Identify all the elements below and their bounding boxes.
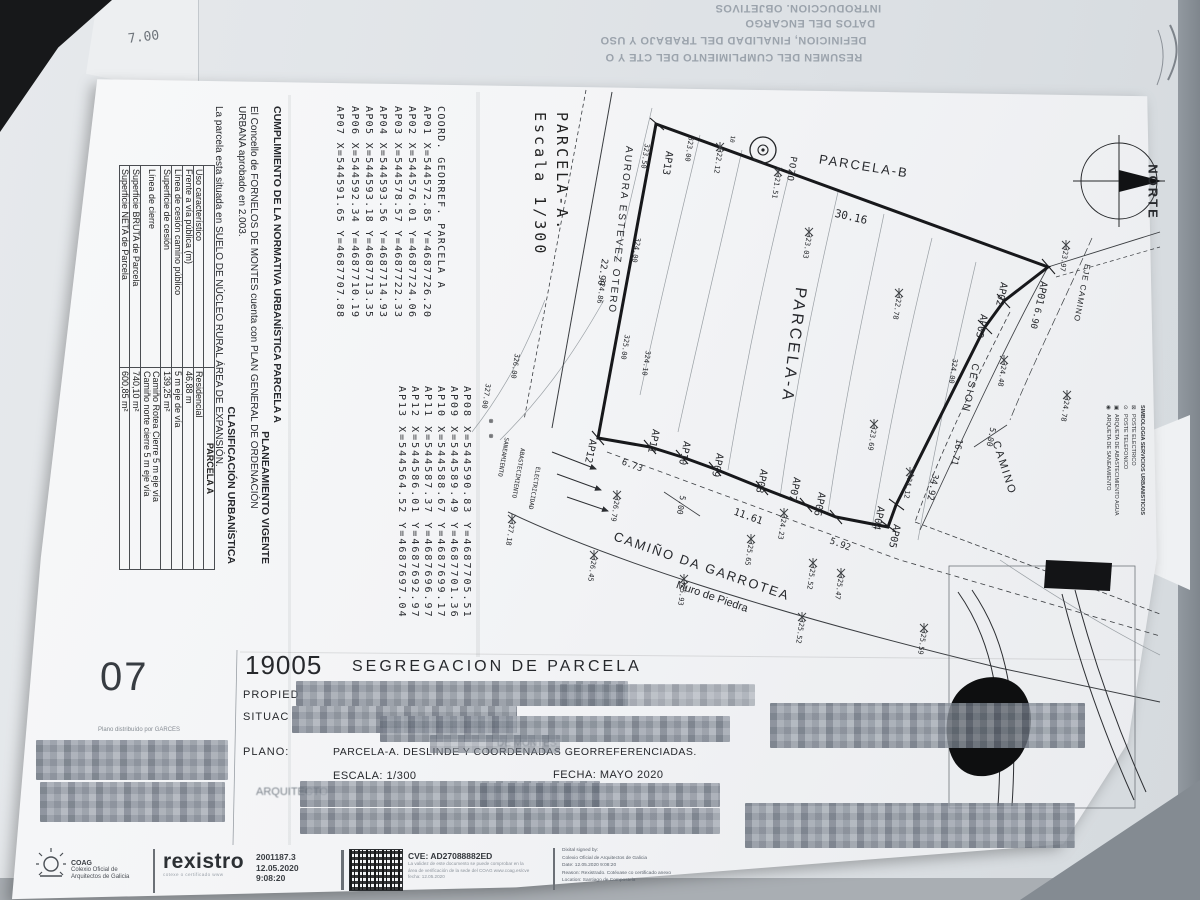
redacted-region bbox=[40, 782, 225, 822]
planeamiento-heading: PLANEAMIENTO VIGENTE bbox=[259, 106, 271, 564]
normativa-title: CUMPLIMIENTO DE LA NORMATIVA URBANÍSTICA… bbox=[270, 106, 282, 564]
project-title: SEGREGACION DE PARCELA bbox=[352, 658, 642, 676]
rexistro-word: rexistro bbox=[163, 852, 244, 872]
photo-of-plan-document: INTRODUCCION. OBJETIVOS DATOS DEL ENCARG… bbox=[0, 0, 1200, 900]
coordinate-line: AP04 X=544593.56 Y=4687714.93 bbox=[375, 106, 389, 338]
coag-name: Arquitectos de Galicia bbox=[71, 874, 129, 881]
fecha-value: FECHA: MAYO 2020 bbox=[553, 769, 664, 781]
table-row: Superficie BRUTA de Parcela 740,10 m² bbox=[130, 166, 141, 570]
coordinate-line: AP06 X=544592.34 Y=4687710.19 bbox=[346, 106, 360, 338]
signature-line: Date: 12.05.2020 9:08:20 bbox=[562, 862, 671, 870]
signature-line: Dixital signed by: bbox=[562, 847, 671, 855]
table-row: Superficie NETA de Parcela 600,85 m² bbox=[119, 166, 130, 570]
redacted-region bbox=[300, 808, 720, 834]
coag-acronym: COAG bbox=[71, 860, 129, 867]
table-row: Línea de cesión camino público 5 m eje d… bbox=[172, 166, 183, 570]
registration-number: 2001187.3 bbox=[256, 852, 299, 863]
table-row: Frente a vía pública (m) 46,88 m bbox=[182, 166, 193, 570]
paper-crease bbox=[476, 92, 480, 657]
propiedad-label: PROPIED bbox=[243, 689, 300, 701]
cve-note: La validez de este documento se puede co… bbox=[408, 861, 529, 868]
redacted-region bbox=[745, 803, 1075, 848]
coordinate-line: AP11 X=544587.37 Y=4687696.97 bbox=[421, 386, 434, 648]
redacted-region bbox=[36, 740, 228, 780]
redacted-region bbox=[770, 703, 1085, 748]
registration-date: 12.05.2020 bbox=[256, 863, 299, 874]
project-number: 19005 bbox=[245, 650, 322, 681]
coordinate-line: AP05 X=544593.18 Y=4687713.35 bbox=[361, 106, 375, 338]
legend-item: ⊠POSTE ELECTRICO bbox=[1129, 405, 1138, 575]
coag-sun-icon bbox=[36, 846, 66, 888]
cve-block: CVE: AD27088882ED La validez de este doc… bbox=[408, 851, 529, 881]
cve-note: área de verificación de la sede del COAG… bbox=[408, 868, 529, 875]
legend-title: SIMBOLOGIA SERVICIOS URBANISTICOS bbox=[1137, 405, 1146, 575]
coordinate-line: AP01 X=544572.85 Y=4687726.20 bbox=[418, 106, 432, 338]
registration-data: 2001187.3 12.05.2020 9:08:20 bbox=[256, 852, 299, 884]
registration-time: 9:08:20 bbox=[256, 873, 299, 884]
rexistro-stamp: rexistro cotexe o certificado www bbox=[163, 852, 244, 877]
normativa-paragraph: URBANA aprobado en 2.003. bbox=[236, 106, 248, 564]
normativa-block: CUMPLIMIENTO DE LA NORMATIVA URBANÍSTICA… bbox=[212, 106, 282, 564]
qr-barcode bbox=[349, 849, 403, 891]
legend-item: ⊙POSTE TELEFONICO bbox=[1120, 405, 1129, 575]
cve-code: CVE: AD27088882ED bbox=[408, 851, 529, 861]
coordinate-line: AP13 X=544564.52 Y=4687697.04 bbox=[395, 386, 408, 648]
signature-line: Reason: Rexistrado. Cotéxase co certific… bbox=[562, 870, 671, 878]
georef-coordinates-group1: COORD. GEORREF. PARCELA A AP01 X=544572.… bbox=[329, 106, 447, 338]
symbols-legend: SIMBOLOGIA SERVICIOS URBANISTICOS ⊠POSTE… bbox=[1092, 405, 1146, 575]
plan-name: PARCELA-A. bbox=[551, 112, 573, 347]
cve-note: fecha: 12.05.2020 bbox=[408, 874, 529, 881]
table-row: Superficie de cesión 139,25 m² bbox=[161, 166, 172, 570]
legend-symbol-icon: ◉ bbox=[1103, 405, 1112, 414]
signature-line: Location: Santiago de Compostela bbox=[562, 877, 671, 885]
legend-item: ▣ARQUETA DE ABASTECIMIENTO AGUA bbox=[1112, 405, 1121, 575]
plano-label: PLANO: bbox=[243, 746, 289, 758]
coordinate-line: AP09 X=544589.49 Y=4687701.36 bbox=[447, 386, 460, 648]
coordinate-line: AP08 X=544590.83 Y=4687705.51 bbox=[460, 386, 473, 648]
situacion-label: SITUAC bbox=[243, 711, 289, 723]
coordinate-line: AP10 X=544588.67 Y=4687699.17 bbox=[434, 386, 447, 648]
coordinate-line: AP02 X=544576.01 Y=4687724.06 bbox=[404, 106, 418, 338]
parcela-a-table: PARCELA A Uso característico Residencial… bbox=[127, 165, 215, 570]
table-row: Línea de cierre Camiño Rotea Cierre 5 m … bbox=[140, 166, 160, 570]
signature-line: Colexio Oficial de Arquitectos de Galici… bbox=[562, 855, 671, 863]
legend-symbol-icon: ⊙ bbox=[1120, 405, 1129, 414]
coordinate-line: AP07 X=544591.65 Y=4687707.88 bbox=[332, 106, 346, 338]
coag-stamp: COAG Colexio Oficial de Arquitectos de G… bbox=[36, 846, 129, 888]
coordinate-line: AP12 X=544586.01 Y=4687692.97 bbox=[408, 386, 421, 648]
coag-name: Colexio Oficial de bbox=[71, 867, 129, 874]
sheet-note: Plano distribuído por GARCÉS bbox=[98, 727, 180, 733]
redacted-region bbox=[560, 684, 755, 706]
legend-symbol-icon: ▣ bbox=[1112, 405, 1121, 414]
paper-crease bbox=[288, 95, 291, 845]
clasificacion-heading: CLASIFICACIÓN URBANÍSTICA bbox=[224, 106, 236, 564]
coords-header: COORD. GEORREF. PARCELA A bbox=[433, 106, 447, 338]
plan-scale: Escala 1/300 bbox=[529, 112, 551, 347]
georef-coordinates-group2: AP08 X=544590.83 Y=4687705.51AP09 X=5445… bbox=[393, 386, 473, 648]
sheet-number: 07 bbox=[100, 655, 149, 700]
coordinate-line: AP03 X=544578.57 Y=4687722.33 bbox=[389, 106, 403, 338]
digital-signature-block: Dixital signed by: Colexio Oficial de Ar… bbox=[562, 847, 671, 885]
table-row: Uso característico Residencial bbox=[193, 166, 204, 570]
normativa-paragraph: El Concello de FORNELOS DE MONTES cuenta… bbox=[247, 106, 259, 564]
redacted-region bbox=[430, 735, 560, 753]
redacted-region bbox=[480, 783, 720, 807]
legend-symbol-icon: ⊠ bbox=[1129, 405, 1138, 414]
plan-name-scale-block: PARCELA-A. Escala 1/300 bbox=[529, 112, 573, 347]
table-header: PARCELA A bbox=[204, 368, 215, 570]
legend-item: ◉ARQUETA DE SANEAMIENTO bbox=[1103, 405, 1112, 575]
